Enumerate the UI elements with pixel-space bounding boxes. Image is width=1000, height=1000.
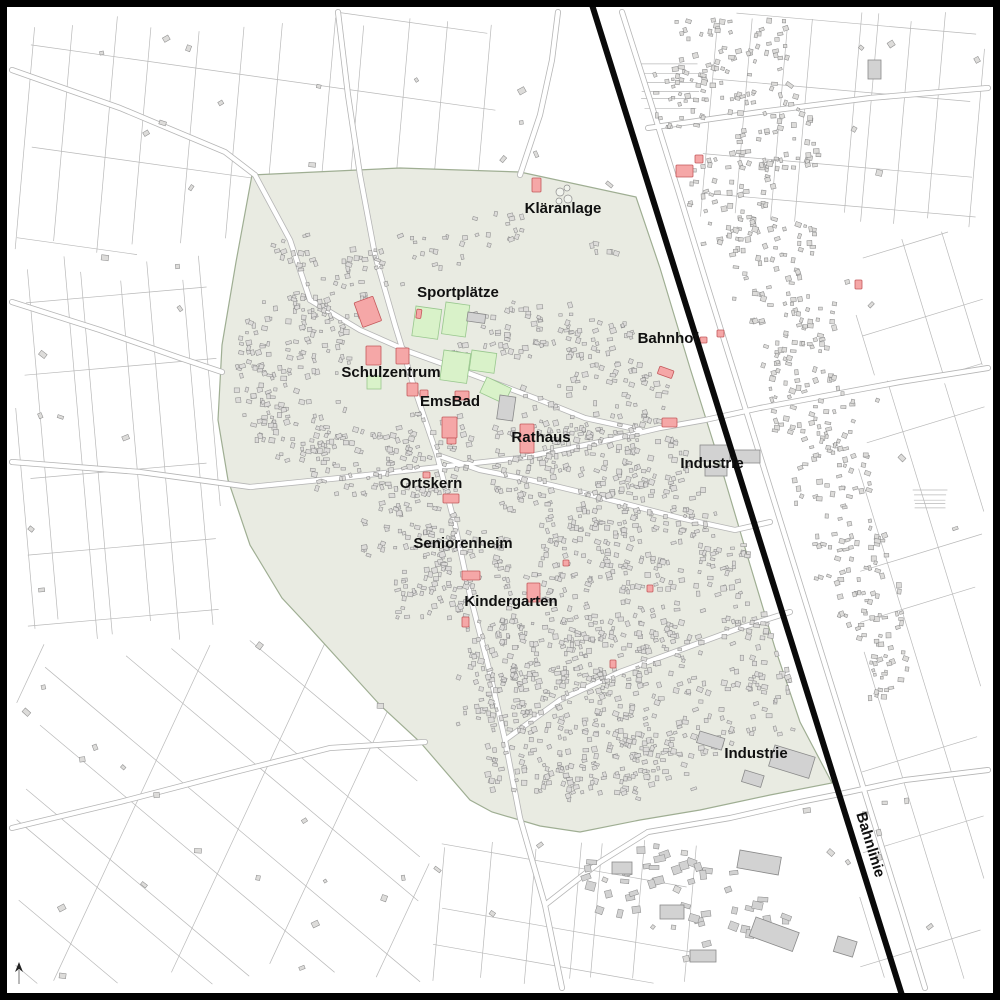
map-label-rathaus: Rathaus: [511, 429, 570, 446]
landmark-building: [717, 330, 724, 337]
landmark-building: [532, 178, 541, 192]
industrial-hall: [868, 60, 881, 79]
industrial-hall: [497, 395, 516, 421]
landmark-building: [462, 617, 469, 627]
landmark-building: [447, 438, 456, 444]
town-plan-map: KläranlageSportplätzeSchulzentrumEmsBadR…: [0, 0, 1000, 1000]
map-label-bahnhof: Bahnhof: [638, 330, 700, 347]
landmark-building: [407, 383, 418, 396]
landmark-building: [563, 560, 569, 566]
landmark-building: [610, 660, 616, 668]
map-label-schulzentrum: Schulzentrum: [341, 364, 440, 381]
sports-field: [469, 350, 497, 373]
industrial-hall: [660, 905, 684, 919]
map-viewport: KläranlageSportplätzeSchulzentrumEmsBadR…: [0, 0, 1000, 1000]
landmark-building: [647, 585, 653, 592]
landmark-building: [700, 337, 707, 343]
treatment-tank: [564, 185, 570, 191]
landmark-building: [442, 417, 457, 438]
industrial-hall: [612, 862, 632, 874]
landmark-building: [416, 309, 422, 319]
landmark-building: [676, 165, 693, 177]
landmark-building: [695, 155, 703, 163]
map-label-seniorenheim: Seniorenheim: [413, 535, 512, 552]
landmark-building: [366, 346, 381, 365]
map-label-ortskern: Ortskern: [400, 475, 463, 492]
landmark-building: [662, 418, 677, 427]
landmark-building: [396, 348, 409, 364]
map-label-sportplaetze: Sportplätze: [417, 284, 499, 301]
map-label-klaeranlage: Kläranlage: [525, 200, 602, 217]
map-label-emsbad: EmsBad: [420, 393, 480, 410]
treatment-tank: [556, 188, 564, 196]
map-label-kindergarten: Kindergarten: [464, 593, 557, 610]
map-label-industrie-nord: Industrie: [680, 455, 743, 472]
sports-field: [442, 302, 470, 337]
landmark-building: [443, 494, 459, 503]
landmark-building: [855, 280, 862, 289]
industrial-hall: [467, 312, 486, 323]
sports-field: [412, 306, 442, 339]
landmark-building: [462, 571, 480, 580]
industrial-hall: [690, 950, 716, 962]
map-label-industrie-sued: Industrie: [724, 745, 787, 762]
sports-field: [440, 350, 471, 383]
